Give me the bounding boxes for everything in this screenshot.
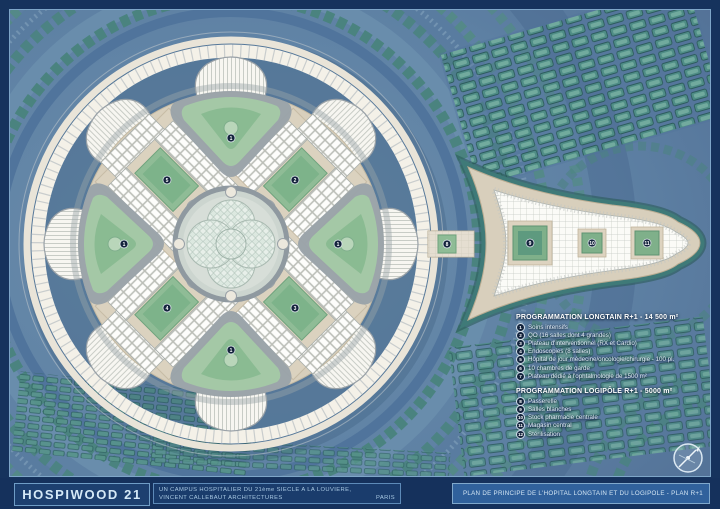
svg-text:1: 1 xyxy=(123,242,126,248)
credit-line-2: VINCENT CALLEBAUT ARCHITECTURES PARIS xyxy=(159,494,395,502)
project-logo: HOSPIWOOD 21 xyxy=(22,487,142,502)
svg-text:11: 11 xyxy=(644,241,650,247)
legend-panel: PROGRAMMATION LONGTAIN R+1 - 14 500 m² 1… xyxy=(516,314,716,446)
legend-item-label: Endoscopies (8 salles) xyxy=(528,348,590,355)
legend-item: 5Hôpital de jour médecine/oncologie/chir… xyxy=(516,356,716,364)
legend-item: 4Endoscopies (8 salles) xyxy=(516,348,716,356)
legend-item-label: 10 chambres de garde xyxy=(528,365,590,372)
legend-item-label: Plateau dédié à l'ophtalmologie de 1500 … xyxy=(528,373,647,380)
marker-badge: 7 xyxy=(516,372,525,381)
svg-text:1: 1 xyxy=(230,136,233,142)
svg-text:10: 10 xyxy=(589,241,595,247)
legend-item-label: Soins intensifs xyxy=(528,324,568,331)
legend-items-logipole: 8Passerelle 9Salles blanches 10Stock pha… xyxy=(516,397,716,438)
legend-item-label: QO (16 salles dont 4 grandes) xyxy=(528,332,611,339)
credit-line-1: UN CAMPUS HOSPITALIER DU 21ème SIECLE A … xyxy=(159,486,395,494)
footer-bar: HOSPIWOOD 21 UN CAMPUS HOSPITALIER DU 21… xyxy=(0,478,720,509)
svg-text:5: 5 xyxy=(166,178,169,184)
legend-item: 610 chambres de garde xyxy=(516,364,716,372)
legend-item: 7Plateau dédié à l'ophtalmologie de 1500… xyxy=(516,372,716,380)
legend-item-label: Stérilisation xyxy=(528,431,560,438)
legend-item: 8Passerelle xyxy=(516,397,716,405)
legend-item: 3Plateau d'interventionnel (RX et Cardio… xyxy=(516,339,716,347)
legend-items-longtain: 1Soins intensifs 2QO (16 salles dont 4 g… xyxy=(516,323,716,380)
architect-name: VINCENT CALLEBAUT ARCHITECTURES xyxy=(159,494,283,502)
svg-text:1: 1 xyxy=(337,242,340,248)
legend-item-label: Passerelle xyxy=(528,398,557,405)
legend-title-longtain: PROGRAMMATION LONGTAIN R+1 - 14 500 m² xyxy=(516,314,716,321)
legend-item: 12Stérilisation xyxy=(516,430,716,438)
central-atrium xyxy=(174,187,289,302)
plan-title-box: PLAN DE PRINCIPE DE L'HOPITAL LONGTAIN E… xyxy=(452,483,710,504)
legend-item-label: Magasin central xyxy=(528,422,572,429)
legend-item-label: Plateau d'interventionnel (RX et Cardio) xyxy=(528,340,637,347)
svg-text:1: 1 xyxy=(230,348,233,354)
legend-title-logipole: PROGRAMMATION LOGIPÔLE R+1 - 5000 m² xyxy=(516,388,716,395)
legend-item: 9Salles blanches xyxy=(516,406,716,414)
legend-item: 1Soins intensifs xyxy=(516,323,716,331)
credit-box: UN CAMPUS HOSPITALIER DU 21ème SIECLE A … xyxy=(153,483,401,504)
svg-text:2: 2 xyxy=(294,178,297,184)
legend-item: 2QO (16 salles dont 4 grandes) xyxy=(516,331,716,339)
poster-page: 1 1 1 1 2 3 4 5 8 9 10 11 xyxy=(0,0,720,509)
legend-item-label: Hôpital de jour médecine/oncologie/chiru… xyxy=(528,356,674,363)
legend-item-label: Stock pharmacie centrale xyxy=(528,414,598,421)
legend-item: 11Magasin central xyxy=(516,422,716,430)
plan-title: PLAN DE PRINCIPE DE L'HOPITAL LONGTAIN E… xyxy=(463,490,703,497)
logo-box: HOSPIWOOD 21 xyxy=(14,483,150,506)
svg-text:3: 3 xyxy=(294,306,297,312)
legend-item: 10Stock pharmacie centrale xyxy=(516,414,716,422)
architect-city: PARIS xyxy=(376,494,395,502)
svg-text:8: 8 xyxy=(446,242,449,248)
marker-badge: 12 xyxy=(516,430,525,439)
legend-item-label: Salles blanches xyxy=(528,406,571,413)
svg-text:4: 4 xyxy=(166,306,169,312)
compass-icon xyxy=(674,444,702,472)
svg-text:9: 9 xyxy=(529,241,532,247)
